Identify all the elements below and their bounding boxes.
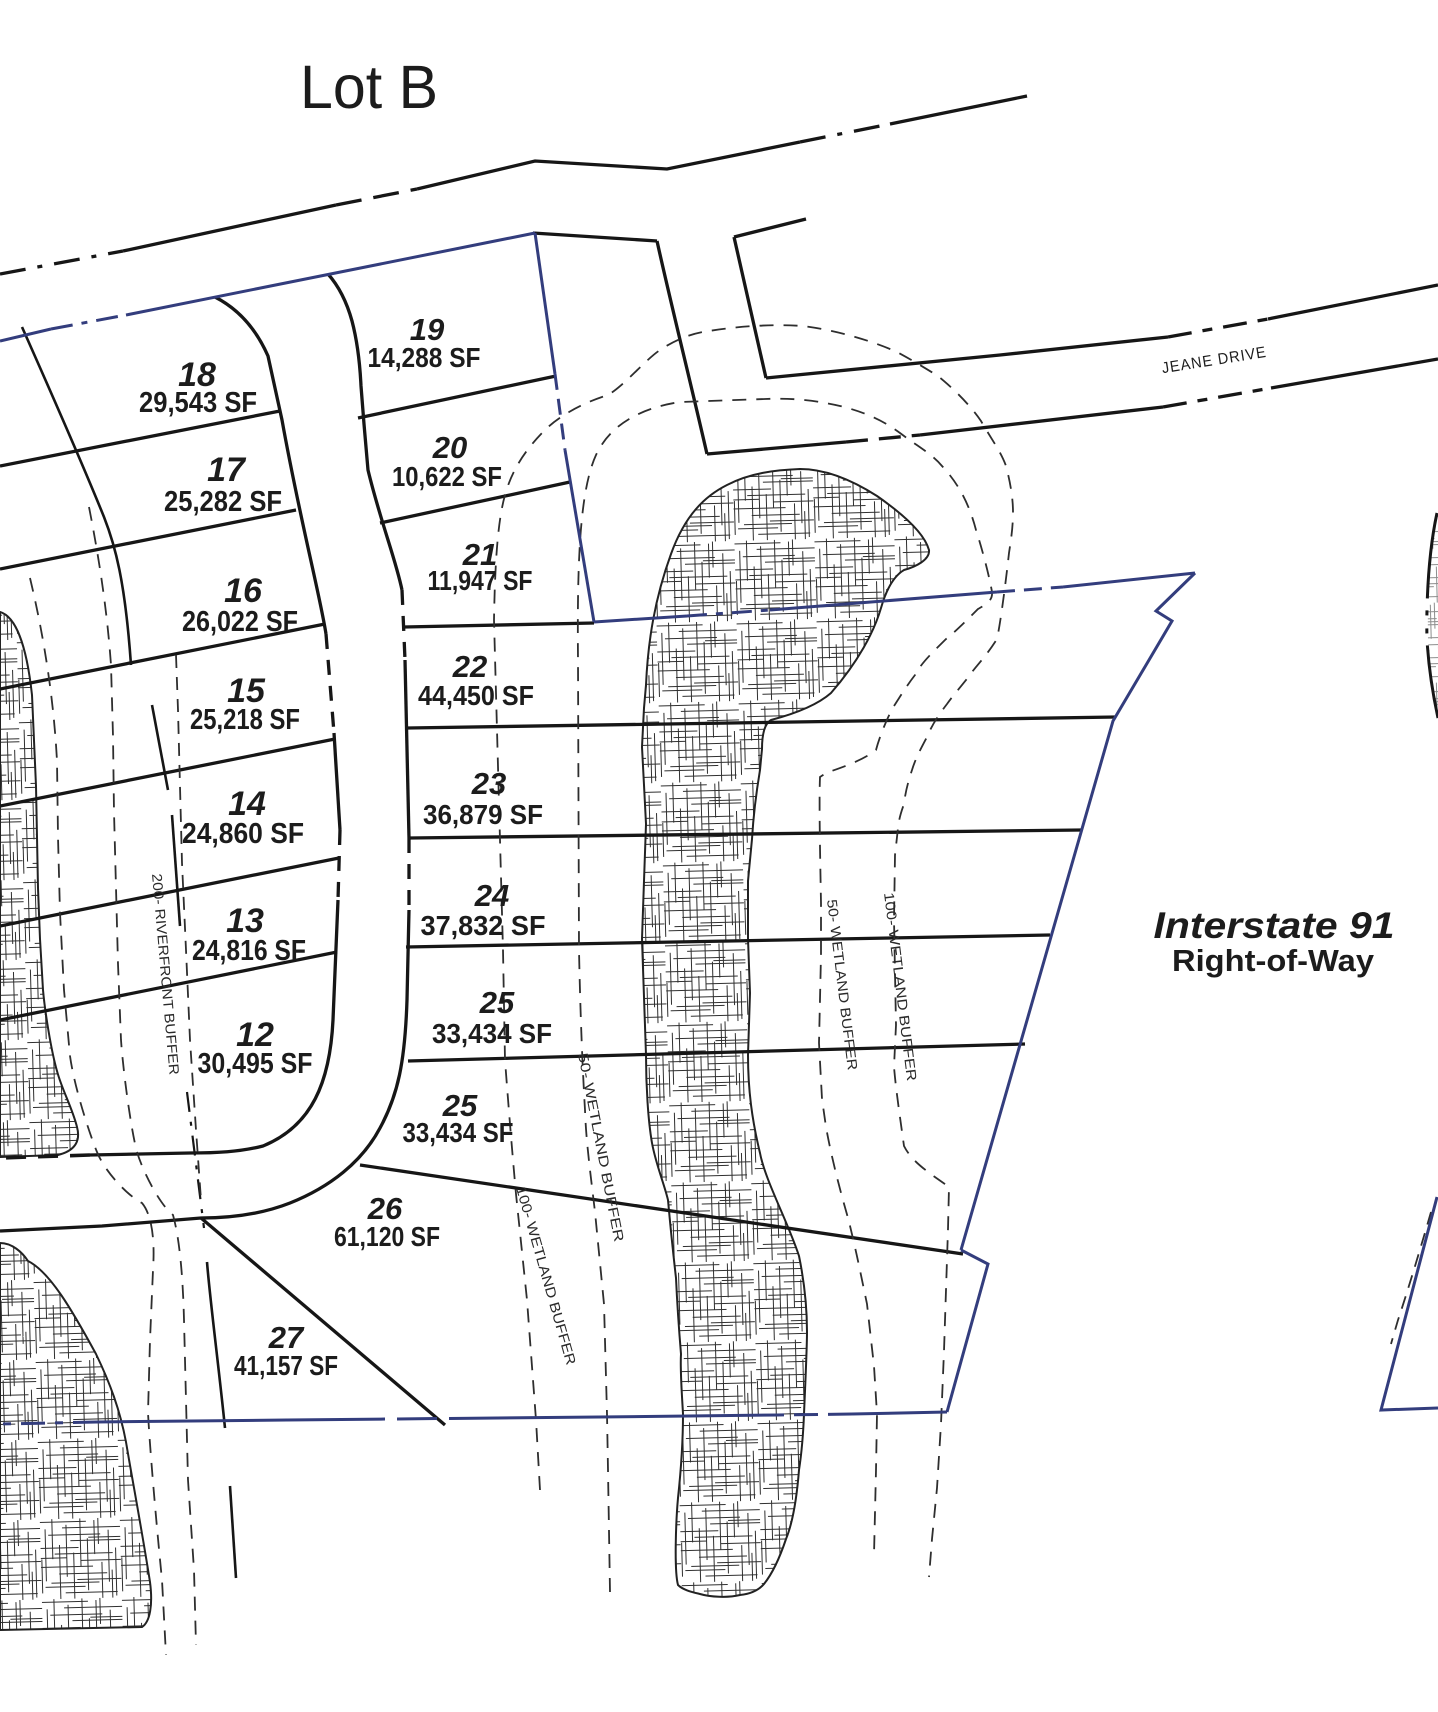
svg-text:23: 23 xyxy=(471,766,506,801)
svg-text:37,832 SF: 37,832 SF xyxy=(421,910,546,941)
svg-text:11,947 SF: 11,947 SF xyxy=(428,565,533,596)
svg-text:14,288 SF: 14,288 SF xyxy=(368,342,481,373)
svg-text:Lot B: Lot B xyxy=(300,53,438,121)
svg-text:30,495 SF: 30,495 SF xyxy=(198,1048,313,1080)
svg-text:36,879 SF: 36,879 SF xyxy=(423,799,543,830)
svg-text:22: 22 xyxy=(452,649,487,684)
svg-text:61,120 SF: 61,120 SF xyxy=(334,1221,440,1252)
svg-text:33,434 SF: 33,434 SF xyxy=(432,1018,552,1049)
svg-text:25,282 SF: 25,282 SF xyxy=(164,486,282,518)
svg-text:Right-of-Way: Right-of-Way xyxy=(1172,943,1375,978)
svg-text:24,816 SF: 24,816 SF xyxy=(192,935,306,967)
svg-text:41,157 SF: 41,157 SF xyxy=(234,1350,338,1381)
svg-text:24,860 SF: 24,860 SF xyxy=(182,818,304,850)
svg-text:Interstate 91: Interstate 91 xyxy=(1154,905,1395,946)
svg-text:25,218 SF: 25,218 SF xyxy=(190,704,300,736)
svg-text:44,450 SF: 44,450 SF xyxy=(418,680,534,711)
svg-text:17: 17 xyxy=(207,451,247,489)
svg-text:25: 25 xyxy=(479,985,515,1020)
svg-text:24: 24 xyxy=(474,878,509,913)
svg-text:29,543 SF: 29,543 SF xyxy=(139,387,257,419)
svg-text:33,434 SF: 33,434 SF xyxy=(403,1117,514,1148)
svg-text:26,022 SF: 26,022 SF xyxy=(182,606,298,638)
svg-text:20: 20 xyxy=(432,430,467,465)
svg-text:10,622 SF: 10,622 SF xyxy=(392,461,502,492)
svg-text:16: 16 xyxy=(224,572,263,610)
